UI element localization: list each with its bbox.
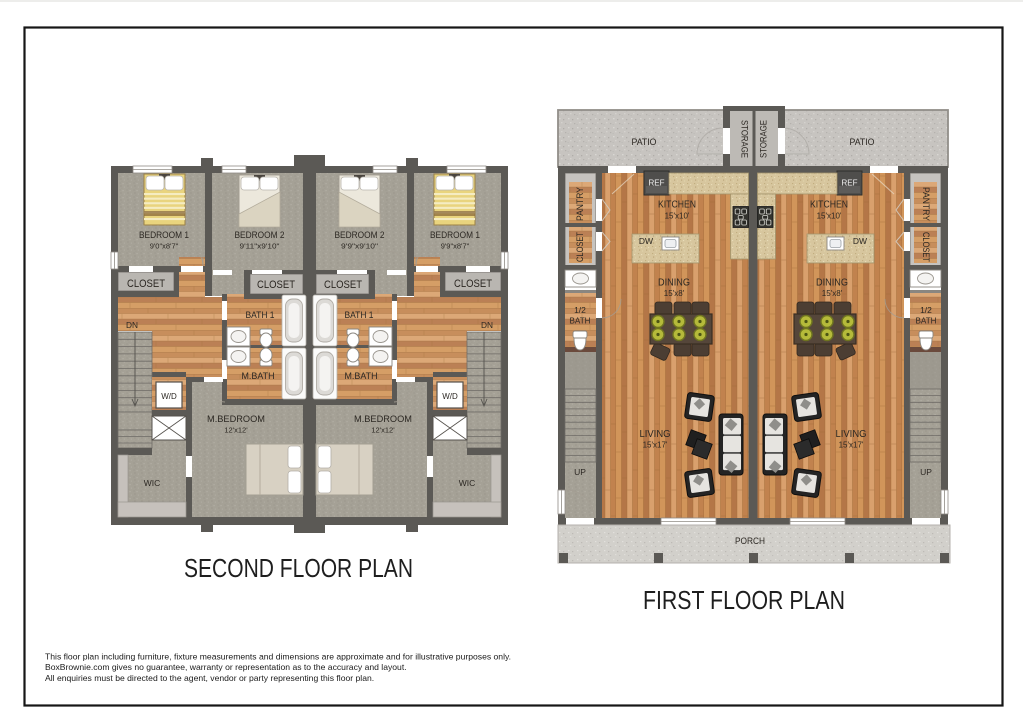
svg-text:UP: UP [920, 467, 932, 477]
svg-text:FIRST FLOOR PLAN: FIRST FLOOR PLAN [643, 585, 845, 615]
svg-text:DINING: DINING [658, 278, 690, 289]
svg-text:BEDROOM 2: BEDROOM 2 [335, 230, 385, 240]
svg-text:W/D: W/D [161, 392, 177, 401]
svg-text:DN: DN [481, 321, 493, 330]
svg-text:M.BEDROOM: M.BEDROOM [207, 414, 265, 425]
svg-text:15'x8': 15'x8' [664, 289, 685, 298]
svg-text:15'x10': 15'x10' [817, 212, 842, 221]
svg-text:KITCHEN: KITCHEN [810, 200, 848, 211]
svg-text:12'x12': 12'x12' [224, 426, 248, 435]
svg-text:WIC: WIC [144, 478, 161, 488]
svg-text:15'x17': 15'x17' [643, 441, 668, 450]
svg-text:PANTRY: PANTRY [921, 187, 931, 221]
svg-text:CLOSET: CLOSET [324, 279, 362, 291]
svg-text:UP: UP [574, 467, 586, 477]
svg-text:BATH: BATH [570, 316, 591, 326]
svg-text:REF: REF [842, 179, 858, 188]
svg-text:15'x8': 15'x8' [822, 289, 843, 298]
svg-text:CLOSET: CLOSET [257, 279, 295, 291]
svg-text:M.BEDROOM: M.BEDROOM [354, 414, 412, 425]
svg-text:DN: DN [126, 321, 138, 330]
svg-text:PATIO: PATIO [632, 137, 657, 148]
svg-text:9'9"x8'7": 9'9"x8'7" [441, 242, 470, 251]
svg-text:REF: REF [649, 179, 665, 188]
svg-text:CLOSET: CLOSET [454, 278, 492, 290]
svg-text:9'9"x9'10": 9'9"x9'10" [341, 242, 378, 251]
svg-text:PATIO: PATIO [850, 137, 875, 148]
svg-text:DW: DW [639, 236, 653, 246]
svg-text:BATH 1: BATH 1 [345, 310, 374, 321]
svg-text:PORCH: PORCH [735, 536, 765, 547]
svg-text:W/D: W/D [442, 392, 458, 401]
svg-text:SECOND FLOOR PLAN: SECOND FLOOR PLAN [184, 553, 413, 583]
svg-text:BEDROOM 1: BEDROOM 1 [430, 230, 480, 240]
svg-text:CLOSET: CLOSET [921, 232, 931, 262]
svg-text:LIVING: LIVING [640, 429, 671, 440]
svg-text:BoxBrownie.com gives no guaran: BoxBrownie.com gives no guarantee, warra… [45, 662, 407, 672]
svg-text:M.BATH: M.BATH [242, 371, 275, 382]
svg-text:1/2: 1/2 [920, 305, 932, 315]
svg-text:M.BATH: M.BATH [345, 371, 378, 382]
svg-text:CLOSET: CLOSET [127, 278, 165, 290]
svg-text:STORAGE: STORAGE [759, 120, 769, 158]
svg-text:All enquiries must be directed: All enquiries must be directed to the ag… [45, 673, 374, 683]
svg-text:PANTRY: PANTRY [575, 187, 585, 221]
svg-text:1/2: 1/2 [574, 305, 586, 315]
svg-text:BATH 1: BATH 1 [246, 310, 275, 321]
svg-text:15'x10': 15'x10' [665, 212, 690, 221]
svg-text:LIVING: LIVING [836, 429, 867, 440]
svg-text:KITCHEN: KITCHEN [658, 200, 696, 211]
svg-text:9'0"x8'7": 9'0"x8'7" [150, 242, 179, 251]
svg-text:BEDROOM 2: BEDROOM 2 [235, 230, 285, 240]
svg-text:STORAGE: STORAGE [740, 120, 750, 158]
svg-text:BEDROOM 1: BEDROOM 1 [139, 230, 189, 240]
svg-text:12'x12': 12'x12' [371, 426, 395, 435]
svg-text:CLOSET: CLOSET [575, 232, 585, 262]
svg-text:DINING: DINING [816, 278, 848, 289]
svg-text:WIC: WIC [459, 478, 476, 488]
svg-text:15'x17': 15'x17' [839, 441, 864, 450]
svg-text:BATH: BATH [916, 316, 937, 326]
svg-text:This floor plan including furn: This floor plan including furniture, fix… [45, 652, 511, 662]
svg-text:DW: DW [853, 236, 867, 246]
svg-text:9'11"x9'10": 9'11"x9'10" [240, 242, 280, 251]
